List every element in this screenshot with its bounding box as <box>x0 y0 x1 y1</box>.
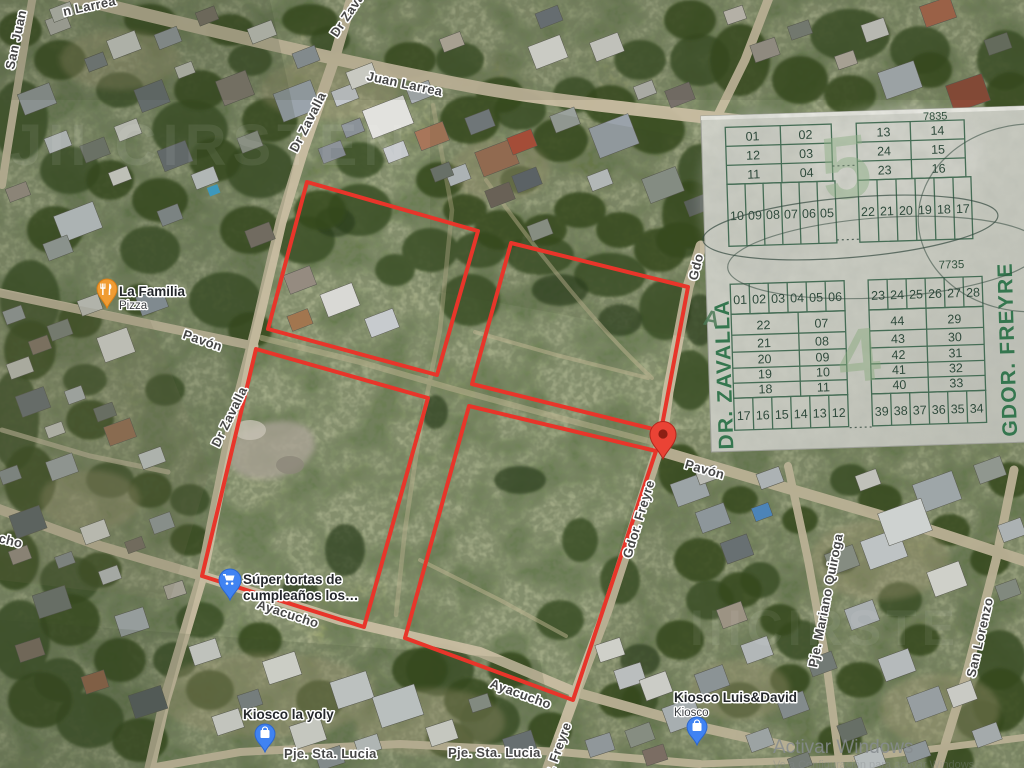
svg-text:24: 24 <box>877 144 891 158</box>
svg-text:Pje. Sta. Lucia: Pje. Sta. Lucia <box>284 746 377 761</box>
svg-text:06: 06 <box>828 290 842 304</box>
svg-text:14: 14 <box>794 407 808 421</box>
svg-text:41: 41 <box>892 363 906 377</box>
svg-text:36: 36 <box>932 403 946 417</box>
svg-text:4: 4 <box>833 312 884 401</box>
svg-text:JII CIRSTEN: JII CIRSTEN <box>10 113 411 178</box>
svg-text:33: 33 <box>949 376 963 390</box>
svg-text:31: 31 <box>948 346 962 360</box>
svg-text:Kiosco la yoly: Kiosco la yoly <box>243 707 334 722</box>
svg-text:18: 18 <box>758 382 772 396</box>
svg-text:Pje. Sta. Lucia: Pje. Sta. Lucia <box>448 745 541 760</box>
svg-text:Pizza: Pizza <box>119 300 148 312</box>
svg-text:34: 34 <box>970 401 984 415</box>
svg-text:19: 19 <box>758 367 772 381</box>
svg-text:17: 17 <box>737 409 751 423</box>
svg-text:10: 10 <box>816 365 830 379</box>
svg-text:40: 40 <box>892 378 906 392</box>
svg-text:23: 23 <box>877 163 891 177</box>
svg-text:Kiosco: Kiosco <box>674 707 709 719</box>
svg-text:02: 02 <box>798 128 812 142</box>
svg-text:Kiosco Luis&David: Kiosco Luis&David <box>674 690 797 705</box>
svg-text:28: 28 <box>966 285 980 299</box>
svg-text:03: 03 <box>799 147 813 161</box>
svg-text:26: 26 <box>928 287 942 301</box>
svg-text:23: 23 <box>871 288 885 302</box>
svg-text:04: 04 <box>800 166 814 180</box>
svg-text:08: 08 <box>815 334 829 348</box>
svg-text:09: 09 <box>815 350 829 364</box>
svg-text:7835: 7835 <box>923 110 948 123</box>
svg-text:21: 21 <box>757 336 771 350</box>
svg-text:18: 18 <box>937 202 951 216</box>
svg-text:04: 04 <box>790 291 804 305</box>
svg-text:37: 37 <box>913 403 927 417</box>
svg-text:12: 12 <box>746 148 760 162</box>
svg-text:24: 24 <box>890 288 904 302</box>
svg-text:Súper tortas de: Súper tortas de <box>243 572 343 587</box>
svg-text:38: 38 <box>894 404 908 418</box>
svg-text:20: 20 <box>757 352 771 366</box>
svg-text:16: 16 <box>931 161 945 175</box>
svg-text:15: 15 <box>931 142 945 156</box>
svg-text:22: 22 <box>756 318 770 332</box>
svg-text:32: 32 <box>949 361 963 375</box>
svg-text:43: 43 <box>891 332 905 346</box>
svg-text:39: 39 <box>875 404 889 418</box>
svg-text:35: 35 <box>951 402 965 416</box>
svg-text:15: 15 <box>775 408 789 422</box>
svg-text:cumpleaños los…: cumpleaños los… <box>243 588 359 603</box>
svg-text:07: 07 <box>784 207 798 221</box>
svg-text:11: 11 <box>817 380 830 394</box>
svg-text:17: 17 <box>956 202 970 216</box>
svg-text:7735: 7735 <box>938 259 964 272</box>
svg-text:Ve a Configuración para activa: Ve a Configuración para activar Windows. <box>773 759 977 768</box>
svg-text:La Familia: La Familia <box>119 284 186 299</box>
svg-text:42: 42 <box>891 348 905 362</box>
svg-text:02: 02 <box>752 292 766 306</box>
svg-text:12: 12 <box>832 406 846 420</box>
svg-text:13: 13 <box>813 406 827 420</box>
svg-text:30: 30 <box>948 330 962 344</box>
svg-text:44: 44 <box>890 314 904 328</box>
svg-text:11: 11 <box>747 167 760 181</box>
svg-text:08: 08 <box>766 208 780 222</box>
svg-text:01: 01 <box>733 293 747 307</box>
svg-text:14: 14 <box>930 124 944 138</box>
svg-text:13: 13 <box>876 125 890 139</box>
svg-text:Activar Windows: Activar Windows <box>773 737 913 758</box>
svg-text:06: 06 <box>802 207 816 221</box>
svg-text:01: 01 <box>745 129 759 143</box>
svg-text:16: 16 <box>756 408 770 422</box>
svg-text:29: 29 <box>947 312 961 326</box>
svg-text:07: 07 <box>814 316 828 330</box>
